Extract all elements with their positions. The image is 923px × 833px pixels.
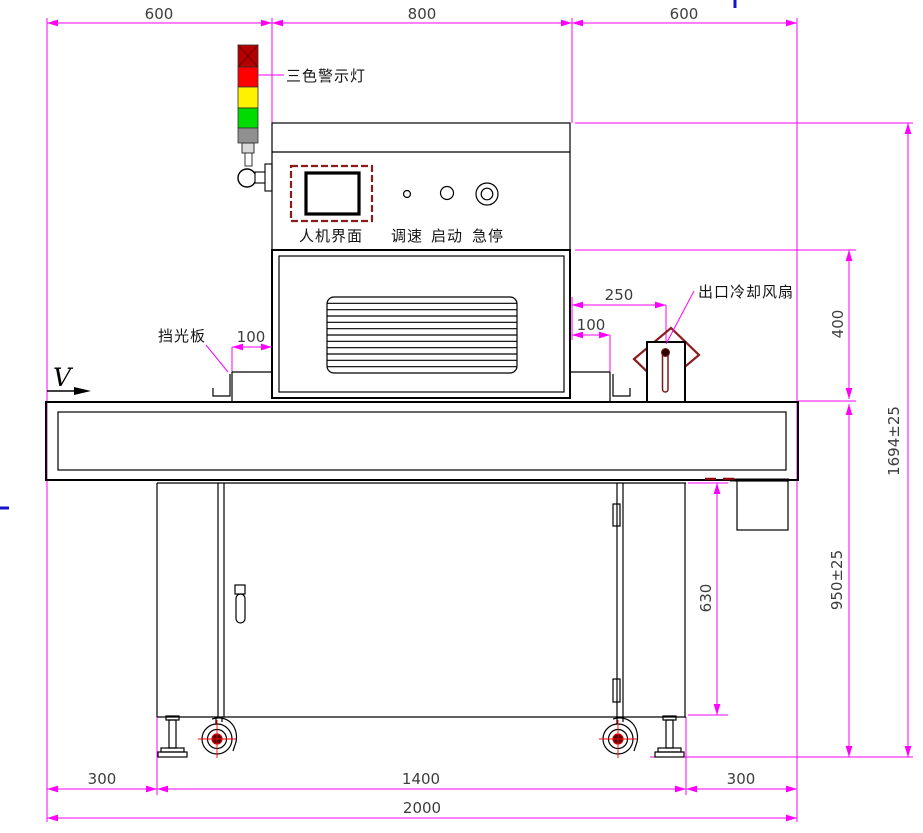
conveyor-table [46, 402, 798, 480]
oven-body [272, 250, 570, 398]
dim-overall-height: 1694±25 [885, 406, 903, 476]
estop-button-outer [476, 183, 498, 205]
dimension-texts: 600 800 600 100 250 100 400 950±25 1694±… [88, 5, 903, 817]
dim-top-right: 600 [670, 5, 699, 23]
leveling-foot-right [655, 716, 684, 757]
door-handle-plate [235, 585, 245, 594]
warning-light [238, 45, 272, 191]
start-label: 启动 [431, 227, 463, 245]
light-pole-joint [238, 169, 256, 187]
direction-arrow: V [47, 363, 91, 395]
dim-belt-height: 950±25 [828, 550, 846, 610]
lower-cabinet [157, 479, 789, 717]
warning-light-yellow [238, 87, 258, 108]
dim-bottom-mid: 1400 [402, 770, 440, 788]
dim-shield-right: 100 [577, 316, 606, 334]
warning-light-red [238, 67, 258, 87]
speed-label: 调速 [391, 227, 423, 245]
dim-oven-to-belt: 400 [829, 310, 847, 339]
door-handle [236, 594, 245, 623]
caster-right [599, 717, 637, 758]
warning-light-label: 三色警示灯 [286, 67, 366, 85]
dim-cabinet-height: 630 [697, 584, 715, 613]
direction-label: V [53, 363, 74, 392]
speed-knob [404, 191, 411, 198]
dim-fan-offset: 250 [605, 286, 634, 304]
side-junction-box [737, 481, 788, 530]
conveyor-belt [58, 412, 786, 470]
warning-light-base [238, 128, 258, 143]
machine-head: 人机界面 调速 启动 急停 [272, 123, 570, 250]
estop-button-inner [481, 188, 493, 200]
fan-stem [663, 351, 669, 392]
drawing-canvas: 人机界面 调速 启动 急停 [0, 0, 923, 833]
caster-left [198, 717, 236, 758]
estop-label: 急停 [472, 227, 504, 245]
dim-bottom-right: 300 [727, 770, 756, 788]
dim-top-mid: 800 [408, 5, 437, 23]
leveling-foot-left [158, 716, 187, 757]
light-shield-right [613, 374, 630, 396]
warning-light-green [238, 108, 258, 128]
light-shield-left [213, 374, 230, 396]
dim-bottom-left: 300 [88, 770, 117, 788]
dim-overall-width: 2000 [403, 799, 441, 817]
extension-lines [47, 18, 913, 822]
light-pole-mount [265, 164, 272, 191]
hmi-label: 人机界面 [299, 227, 363, 245]
machine-drawing: 人机界面 调速 启动 急停 [0, 0, 923, 833]
dimension-lines [47, 23, 908, 818]
direction-arrowhead [74, 387, 91, 395]
outlet-fan-label: 出口冷却风扇 [698, 283, 794, 301]
stray-marks [0, 0, 735, 508]
start-button [441, 187, 454, 200]
hmi-screen [306, 173, 359, 214]
dim-shield-left: 100 [237, 328, 266, 346]
dim-top-left: 600 [145, 5, 174, 23]
light-shield-label: 挡光板 [158, 327, 206, 345]
